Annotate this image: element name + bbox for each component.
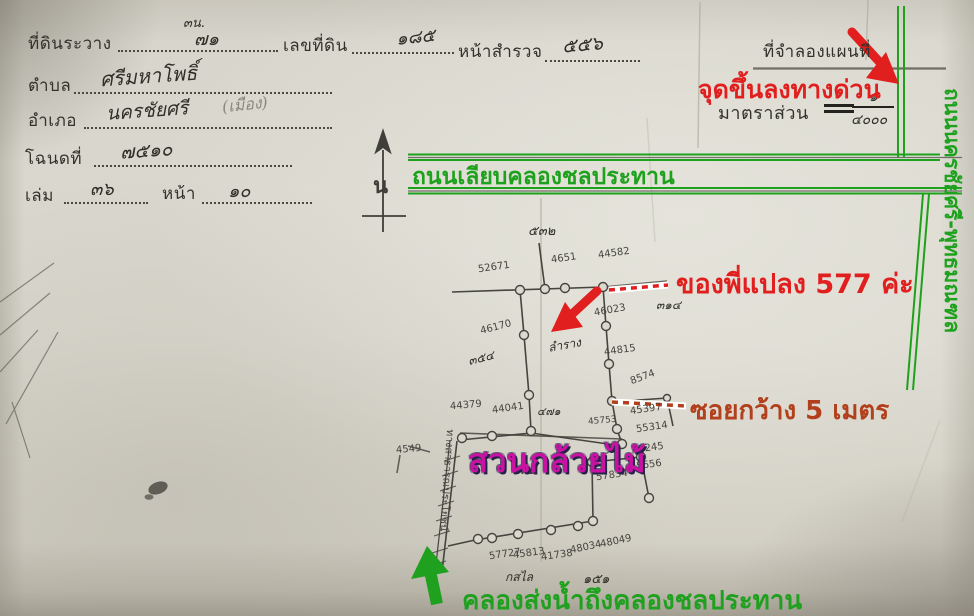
field-label-land-no: เลขที่ดิน	[283, 32, 348, 59]
field-label-amphoe: อำเภอ	[28, 107, 77, 134]
scale-denominator: ๔๐๐๐	[851, 109, 887, 131]
field-value-tambon: ศรีมหาโพธิ์	[99, 57, 198, 96]
water-canal-label: คลองส่งน้ำถึงคลองชลประทาน	[462, 580, 802, 616]
field-note-amphoe: (เมือง)	[221, 91, 269, 121]
north-letter: น	[373, 168, 388, 203]
field-value-survey: ๕๕๖	[561, 28, 604, 61]
expressway-point-label: จุดขึ้นลงทางด่วน	[698, 70, 881, 110]
field-value-amphoe: นครชัยศรี	[105, 93, 189, 129]
field-label-deed: โฉนดที่	[25, 145, 82, 172]
dotted-line	[202, 188, 312, 204]
side-road-label: ถนนนครชัยศรี-พุทธมณฑล	[935, 88, 968, 408]
field-label-sheet: ที่ดินระวาง	[28, 30, 112, 57]
scanned-land-deed-photo: ๓น. ที่ดินระวาง ๗๑ เลขที่ดิน ๑๘๕ หน้าสำร…	[0, 0, 974, 616]
ink-smudge-small	[145, 494, 154, 500]
map-note: ๔๗๑	[537, 402, 561, 420]
map-title: ที่จำลองแผนที่	[763, 38, 871, 65]
plot-arrow	[551, 291, 597, 332]
field-value-book: ๓๖	[90, 174, 114, 203]
field-label-tambon: ตำบล	[28, 72, 71, 99]
field-value-page: ๑๐	[228, 176, 250, 205]
canal-road-label: ถนนเลียบคลองชลประทาน	[412, 159, 675, 195]
soi-width-label: ซอยกว้าง 5 เมตร	[690, 390, 889, 431]
field-value-sheet: ๗๑	[194, 24, 219, 53]
field-label-page: หน้า	[162, 180, 196, 207]
parcel-number: 4549	[396, 443, 422, 456]
plot-callout-label: ของพี่แปลง 577 ค่ะ	[676, 262, 914, 305]
field-value-deed: ๗๕๑๐	[119, 134, 173, 168]
plot-callout-dashed-line	[609, 285, 668, 290]
field-label-survey: หน้าสำรวจ	[458, 38, 542, 65]
map-note: ๕๓๒	[528, 220, 555, 241]
field-label-book: เล่ม	[25, 182, 54, 209]
field-value-land-no: ๑๘๕	[395, 20, 437, 53]
orchid-farm-label: สวนกล้วยไม้	[468, 434, 646, 487]
pencil-scribbles	[0, 263, 58, 458]
